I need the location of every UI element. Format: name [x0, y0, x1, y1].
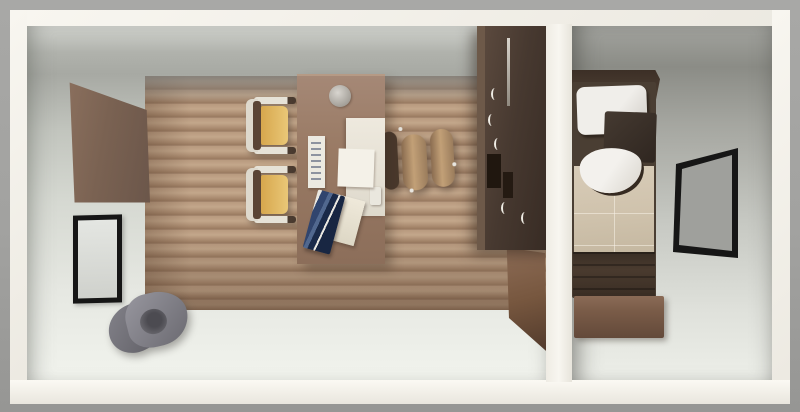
guest-chair-seat — [261, 106, 288, 145]
wardrobe-handle-curve — [521, 212, 529, 224]
wall-bottom — [10, 380, 790, 404]
duvet-seam — [574, 245, 654, 246]
lounge-chair — [108, 292, 190, 354]
guest-chair-backpad — [253, 101, 261, 150]
wardrobe-side-panel — [477, 26, 485, 250]
guest-chair-seat — [261, 175, 288, 214]
brochure-stand — [308, 136, 325, 188]
task-chair-caster — [398, 127, 402, 131]
wall-divider — [546, 24, 572, 382]
wardrobe-niche — [487, 154, 501, 188]
small-desk-item — [370, 187, 381, 205]
paper-sheet — [337, 148, 374, 187]
task-chair-armrest — [429, 128, 455, 187]
duvet-seam — [574, 213, 654, 214]
wardrobe-bottle — [488, 114, 496, 126]
guest-chair-backpad — [253, 170, 261, 219]
guest-chair-2 — [246, 166, 298, 223]
wardrobe-bottle — [494, 138, 502, 150]
wardrobe-handle-curve — [501, 202, 509, 214]
task-chair-armrest — [401, 134, 429, 191]
wall-left — [10, 10, 27, 402]
wall-top — [10, 10, 790, 26]
task-chair-caster — [410, 188, 414, 192]
footboard-stripes — [573, 252, 655, 296]
wall-right — [772, 10, 790, 404]
task-chair — [380, 122, 462, 196]
floorplan-scene — [0, 0, 800, 412]
right-window — [668, 142, 744, 262]
foot-bench — [574, 296, 664, 338]
left-window-glass — [78, 219, 117, 298]
right-window-glass — [679, 155, 732, 251]
desk-round-tray — [329, 85, 351, 107]
left-window — [73, 214, 122, 303]
wardrobe-handle — [507, 38, 510, 106]
wardrobe-niche — [503, 172, 513, 198]
wardrobe-bottle — [491, 88, 499, 100]
bed-footboard — [573, 252, 655, 296]
wardrobe-cabinet — [477, 26, 557, 250]
brochure-print — [311, 142, 321, 182]
guest-chair-1 — [246, 97, 298, 154]
task-chair-caster — [452, 162, 456, 166]
